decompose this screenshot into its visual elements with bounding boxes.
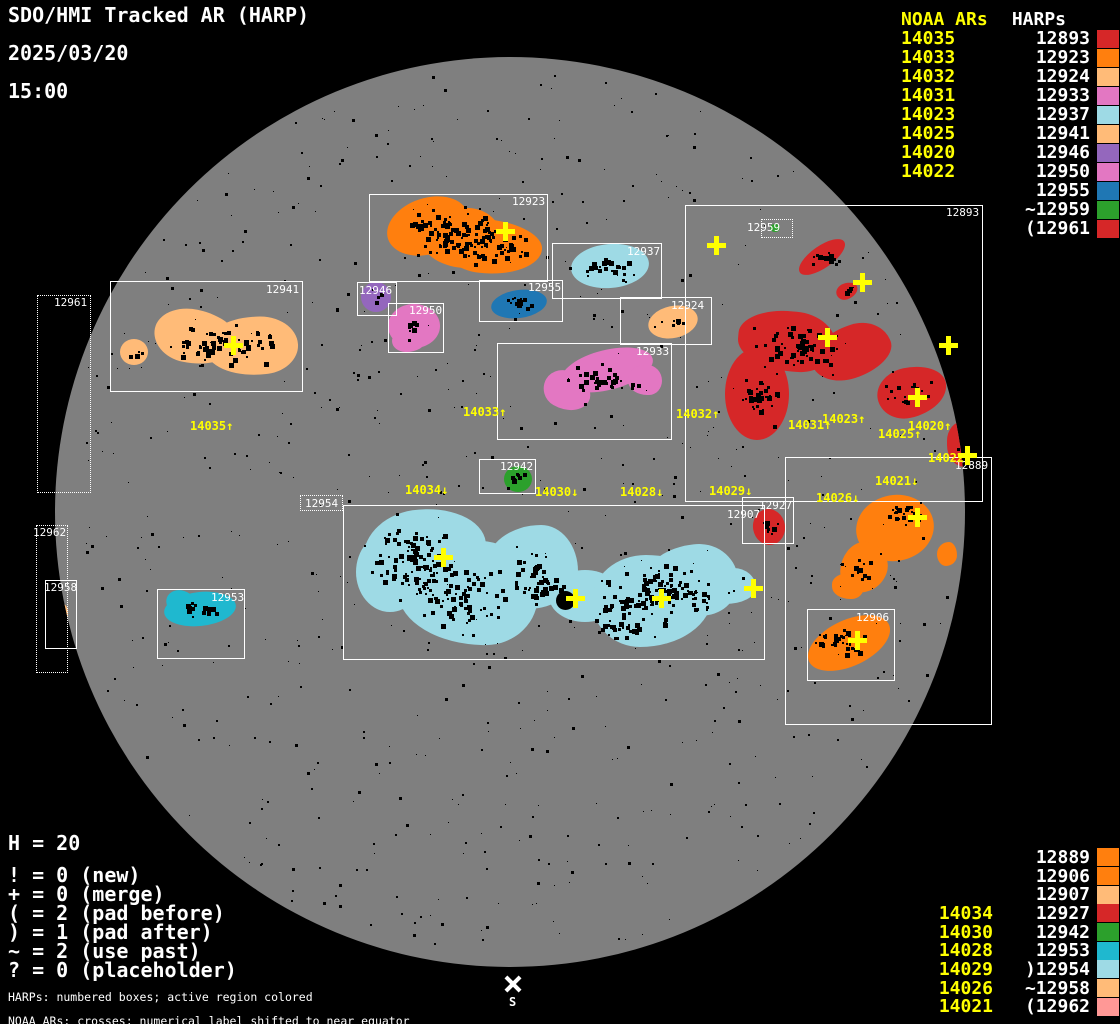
speckle	[448, 389, 449, 390]
speckle	[314, 392, 316, 394]
noaa-ar-cross	[434, 548, 453, 567]
speckle	[531, 748, 534, 751]
speckle	[277, 436, 278, 437]
speckle	[536, 903, 537, 904]
harp-number: 12923	[993, 48, 1090, 67]
speckle	[488, 731, 489, 732]
speckle	[150, 569, 151, 570]
speckle	[234, 453, 236, 455]
speckle	[278, 844, 280, 846]
speckle	[265, 639, 266, 640]
speckle	[371, 341, 373, 343]
speckle	[529, 835, 532, 838]
speckle	[738, 782, 740, 784]
speckle	[413, 934, 416, 937]
harp-box-label-12954: 12954	[305, 498, 338, 510]
harp-color-swatch	[1097, 923, 1119, 941]
speckle	[520, 728, 521, 729]
speckle	[538, 859, 540, 861]
speckle	[151, 533, 154, 536]
speckle	[593, 314, 596, 317]
speckle	[347, 147, 348, 148]
speckle	[483, 373, 485, 375]
speckle	[132, 640, 133, 641]
south-pole-x-icon	[504, 975, 522, 993]
speckle	[861, 759, 862, 760]
harp-number: ~12958	[993, 979, 1090, 998]
harp-box-label-12907: 12907	[727, 509, 760, 521]
speckle	[571, 871, 574, 874]
speckle	[674, 476, 677, 479]
speckle	[315, 211, 316, 212]
noaa-ar-cross	[853, 273, 872, 292]
speckle	[777, 699, 778, 700]
speckle	[292, 206, 295, 209]
speckle	[290, 423, 292, 425]
legend-top-row: 1403212924	[901, 67, 1119, 86]
speckle	[280, 472, 282, 474]
speckle	[568, 698, 570, 700]
speckle	[813, 812, 815, 814]
speckle	[522, 181, 524, 183]
speckle	[374, 417, 376, 419]
speckle	[202, 249, 205, 252]
speckle	[398, 106, 399, 107]
speckle	[163, 239, 165, 241]
speckle	[86, 551, 89, 554]
speckle	[481, 930, 482, 931]
speckle	[318, 817, 320, 819]
noaa-ar-label: 14030↓	[535, 486, 578, 499]
harp-color-swatch	[1097, 904, 1119, 922]
noaa-ar-number: 14025	[901, 124, 993, 143]
speckle	[363, 731, 365, 733]
harp-box-label-12923: 12923	[512, 196, 545, 208]
speckle	[583, 488, 586, 491]
speckle	[359, 349, 361, 351]
harp-color-swatch	[1097, 30, 1119, 48]
speckle	[221, 260, 223, 262]
speckle	[145, 272, 146, 273]
speckle	[673, 483, 675, 485]
legend-bottom-row: 1403412927	[901, 904, 1119, 923]
harp-color-swatch	[1097, 942, 1119, 960]
noaa-ars-header: NOAA ARs	[901, 10, 993, 29]
speckle	[528, 118, 530, 120]
harp-number: 12906	[993, 867, 1090, 886]
noaa-ar-number: 14028	[901, 941, 993, 960]
speckle	[417, 715, 418, 716]
noaa-ar-number: 14030	[901, 923, 993, 942]
speckle	[641, 684, 642, 685]
noaa-ar-number: 14021	[901, 997, 993, 1016]
noaa-ar-label: 14029↓	[709, 485, 752, 498]
speckle	[183, 537, 184, 538]
speckle	[665, 699, 667, 701]
speckle	[445, 698, 448, 701]
speckle	[466, 456, 467, 457]
speckle	[755, 756, 756, 757]
legend-bottom-row: 12907	[901, 885, 1119, 904]
speckle	[250, 469, 251, 470]
speckle	[288, 661, 289, 662]
speckle	[540, 84, 542, 86]
speckle	[750, 157, 752, 159]
speckle	[336, 408, 339, 411]
speckle	[432, 76, 435, 79]
speckle	[578, 159, 581, 162]
harp-number: 12937	[993, 105, 1090, 124]
speckle	[682, 443, 683, 444]
legend-bottom-right: 1288912906129071403412927140301294214028…	[901, 848, 1119, 1016]
harp-color-swatch	[1097, 106, 1119, 124]
speckle	[627, 746, 630, 749]
speckle	[96, 375, 98, 377]
speckle	[547, 691, 548, 692]
speckle	[89, 527, 90, 528]
speckle	[213, 662, 214, 663]
speckle	[751, 180, 753, 182]
speckle	[696, 740, 697, 741]
speckle	[541, 158, 543, 160]
speckle	[428, 409, 431, 412]
speckle	[866, 766, 868, 768]
harps-header: HARPs	[993, 10, 1090, 29]
harp-color-swatch	[1097, 87, 1119, 105]
speckle	[288, 442, 290, 444]
harp-box-label-12946: 12946	[359, 285, 392, 297]
harp-number: 12950	[993, 162, 1090, 181]
speckle	[777, 175, 779, 177]
harp-count: H = 20	[8, 831, 80, 855]
speckle	[400, 393, 402, 395]
speckle	[742, 178, 743, 179]
speckle	[506, 775, 508, 777]
speckle	[452, 799, 453, 800]
speckle	[598, 844, 600, 846]
speckle	[120, 605, 123, 608]
speckle	[554, 138, 555, 139]
speckle	[262, 799, 263, 800]
speckle	[416, 754, 417, 755]
speckle	[228, 173, 229, 174]
harp-box-12961	[37, 295, 91, 493]
speckle	[247, 696, 249, 698]
speckle	[462, 684, 465, 687]
speckle	[554, 885, 555, 886]
legend-bottom-row: 14021(12962	[901, 998, 1119, 1017]
speckle	[348, 454, 350, 456]
legend-top-rows: 1403512893140331292314032129241403112933…	[901, 29, 1119, 238]
speckle	[389, 762, 391, 764]
speckle	[482, 939, 484, 941]
speckle	[793, 171, 794, 172]
speckle	[420, 156, 421, 157]
speckle	[261, 863, 263, 865]
harp-number: )12954	[993, 960, 1090, 979]
speckle	[551, 88, 552, 89]
speckle	[101, 587, 104, 590]
title-line-3: 15:00	[8, 79, 68, 103]
speckle	[586, 222, 588, 224]
speckle	[466, 897, 468, 899]
speckle	[516, 773, 517, 774]
speckle	[197, 200, 198, 201]
harp-box-label-12959: 12959	[747, 222, 780, 234]
speckle	[317, 762, 319, 764]
legend-bottom-row: 14026~12958	[901, 979, 1119, 998]
noaa-ar-cross	[908, 388, 927, 407]
speckle	[556, 228, 558, 230]
speckle	[295, 122, 297, 124]
speckle	[297, 640, 298, 641]
harp-box-label-12906: 12906	[856, 612, 889, 624]
speckle	[789, 843, 790, 844]
legend-top-row: 12955	[901, 181, 1119, 200]
speckle	[723, 707, 725, 709]
speckle	[729, 763, 731, 765]
legend-top-row: 1403312923	[901, 48, 1119, 67]
speckle	[738, 860, 739, 861]
noaa-ar-label: 14021↓	[875, 475, 918, 488]
speckle	[204, 457, 206, 459]
speckle	[136, 704, 138, 706]
speckle	[737, 678, 738, 679]
speckle	[282, 413, 283, 414]
speckle	[669, 665, 671, 667]
legend-bottom-row: 1402812953	[901, 941, 1119, 960]
harp-number: 12946	[993, 143, 1090, 162]
speckle	[319, 259, 321, 261]
noaa-ar-cross	[496, 222, 515, 241]
speckle	[484, 851, 486, 853]
harp-color-swatch	[1097, 960, 1119, 978]
speckle	[714, 720, 716, 722]
harp-number: 12955	[993, 181, 1090, 200]
speckle	[559, 933, 560, 934]
speckle	[244, 857, 245, 858]
speckle	[133, 667, 134, 668]
legend-bottom-row: 1403012942	[901, 923, 1119, 942]
speckle	[617, 758, 618, 759]
speckle	[111, 422, 112, 423]
speckle	[86, 543, 87, 544]
speckle	[552, 201, 554, 203]
harp-color-swatch	[1097, 220, 1119, 238]
speckle	[454, 407, 455, 408]
speckle	[244, 230, 247, 233]
speckle	[295, 744, 298, 747]
speckle	[158, 546, 160, 548]
speckle	[700, 111, 701, 112]
speckle	[291, 900, 293, 902]
speckle	[292, 868, 295, 871]
speckle	[300, 686, 302, 688]
speckle	[682, 190, 683, 191]
speckle	[647, 883, 648, 884]
speckle	[534, 720, 535, 721]
speckle	[708, 811, 710, 813]
noaa-ar-number: 14029	[901, 960, 993, 979]
speckle	[239, 535, 240, 536]
speckle	[694, 133, 696, 135]
harp-number: ~12959	[993, 200, 1090, 219]
speckle	[487, 722, 489, 724]
speckle	[370, 924, 372, 926]
harp-number: 12893	[993, 29, 1090, 48]
speckle	[97, 432, 99, 434]
speckle	[423, 105, 424, 106]
speckle	[213, 737, 215, 739]
speckle	[800, 838, 801, 839]
speckle	[509, 151, 510, 152]
noaa-ar-cross	[707, 236, 726, 255]
speckle	[369, 476, 370, 477]
speckle	[446, 176, 447, 177]
speckle	[554, 737, 555, 738]
speckle	[714, 804, 715, 805]
speckle	[273, 191, 274, 192]
speckle	[374, 853, 375, 854]
speckle	[269, 462, 270, 463]
speckle	[653, 458, 655, 460]
noaa-ar-number: 14031	[901, 86, 993, 105]
speckle	[311, 572, 314, 575]
speckle	[476, 393, 477, 394]
speckle	[439, 738, 440, 739]
speckle	[146, 590, 148, 592]
speckle	[167, 431, 168, 432]
speckle	[353, 372, 355, 374]
speckle	[106, 536, 107, 537]
speckle	[809, 823, 811, 825]
speckle	[567, 861, 568, 862]
speckle	[617, 817, 619, 819]
speckle	[422, 464, 424, 466]
speckle	[430, 834, 431, 835]
noaa-ar-cross	[566, 589, 585, 608]
speckle	[604, 169, 605, 170]
noaa-ar-cross	[908, 508, 927, 527]
legend-bottom-row: 12889	[901, 848, 1119, 867]
speckle	[352, 119, 355, 122]
speckle	[183, 724, 186, 727]
noaa-ar-label: 14026↓	[816, 492, 859, 505]
noaa-ar-label: 14028↓	[620, 486, 663, 499]
noaa-ar-cross	[744, 579, 763, 598]
speckle	[554, 75, 556, 77]
speckle	[738, 720, 741, 723]
speckle	[209, 403, 211, 405]
harp-color-swatch	[1097, 68, 1119, 86]
harp-number: 12907	[993, 885, 1090, 904]
speckle	[682, 742, 683, 743]
harp-number: 12924	[993, 67, 1090, 86]
harp-box-label-12941: 12941	[266, 284, 299, 296]
speckle	[430, 915, 431, 916]
speckle	[332, 649, 333, 650]
harp-color-swatch	[1097, 144, 1119, 162]
speckle	[547, 710, 548, 711]
speckle	[623, 200, 625, 202]
speckle	[669, 919, 670, 920]
legend-top-row: 1402212950	[901, 162, 1119, 181]
speckle	[375, 763, 378, 766]
speckle	[611, 326, 613, 328]
speckle	[290, 244, 292, 246]
speckle	[432, 166, 433, 167]
speckle	[114, 678, 116, 680]
speckle	[676, 186, 677, 187]
harp-number: (12962	[993, 997, 1090, 1016]
speckle	[141, 537, 142, 538]
legend-top-right: NOAA ARs HARPs 1403512893140331292314032…	[901, 10, 1119, 238]
speckle	[335, 895, 337, 897]
legend-bottom-row: 12906	[901, 867, 1119, 886]
speckle	[278, 212, 279, 213]
legend-bottom-row: 14029)12954	[901, 960, 1119, 979]
speckle	[189, 815, 190, 816]
speckle	[225, 193, 228, 196]
noaa-ar-cross	[939, 336, 958, 355]
speckle	[388, 492, 389, 493]
speckle	[254, 189, 255, 190]
speckle	[95, 430, 97, 432]
speckle	[301, 152, 303, 154]
harp-number: 12941	[993, 124, 1090, 143]
noaa-ar-number: 14035	[901, 29, 993, 48]
speckle	[198, 739, 200, 741]
harp-number: 12953	[993, 941, 1090, 960]
speckle	[137, 547, 139, 549]
speckle	[622, 464, 624, 466]
speckle	[505, 804, 506, 805]
speckle	[299, 663, 300, 664]
speckle	[373, 843, 375, 845]
speckle	[670, 783, 673, 786]
legend-header-row: NOAA ARs HARPs	[901, 10, 1119, 29]
harp-color-swatch	[1097, 201, 1119, 219]
speckle	[401, 913, 403, 915]
speckle	[444, 89, 447, 92]
speckle	[358, 791, 361, 794]
harp-box-label-12962: 12962	[33, 527, 66, 539]
speckle	[527, 446, 529, 448]
speckle	[441, 923, 444, 926]
speckle	[518, 702, 520, 704]
speckle	[279, 472, 280, 473]
legend-top-row: (12961	[901, 219, 1119, 238]
speckle	[231, 531, 232, 532]
harp-color-swatch	[1097, 163, 1119, 181]
speckle	[229, 745, 230, 746]
speckle	[500, 826, 502, 828]
speckle	[145, 559, 146, 560]
speckle	[735, 691, 737, 693]
speckle	[582, 201, 584, 203]
speckle	[254, 737, 256, 739]
speckle	[711, 806, 712, 807]
speckle	[246, 455, 248, 457]
noaa-ar-label: 14033↑	[463, 406, 506, 419]
speckle	[322, 118, 323, 119]
speckle	[146, 756, 149, 759]
speckle	[182, 709, 184, 711]
speckle	[572, 727, 575, 730]
speckle	[107, 690, 109, 692]
speckle	[778, 599, 779, 600]
speckle	[621, 98, 622, 99]
